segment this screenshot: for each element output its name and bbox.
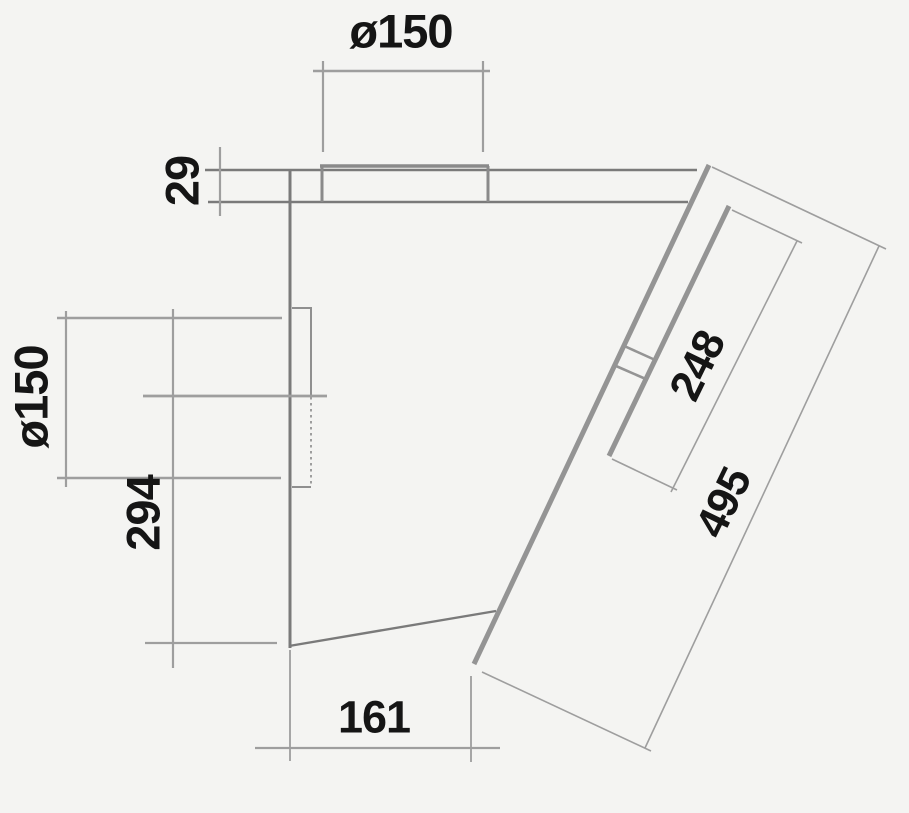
hood-dimension-drawing: ø150 29 ø150 294 161 248 495 xyxy=(0,0,909,813)
panel-bracket-lower xyxy=(616,366,648,380)
ext-line-front-panel-bottom xyxy=(482,672,651,751)
panel-bracket-upper xyxy=(622,345,653,359)
rear-duct-spigot-outline xyxy=(292,308,311,397)
drawing-linework xyxy=(0,0,909,813)
glass-panel-line xyxy=(609,206,729,456)
ext-line-glass-panel-top xyxy=(732,210,802,243)
label-bottom-depth: 161 xyxy=(338,695,410,740)
ext-line-glass-panel-bottom xyxy=(612,459,677,490)
label-rear-duct-diameter: ø150 xyxy=(8,345,55,448)
label-rear-lower-height: 294 xyxy=(120,475,167,550)
front-slanted-panel-line xyxy=(474,165,709,664)
hood-bottom-edge-line xyxy=(289,611,496,646)
dim-line-front-panel xyxy=(645,246,879,748)
label-top-duct-diameter: ø150 xyxy=(349,8,452,55)
ext-line-front-panel-top xyxy=(712,167,886,249)
label-top-plate-thickness: 29 xyxy=(159,156,206,206)
